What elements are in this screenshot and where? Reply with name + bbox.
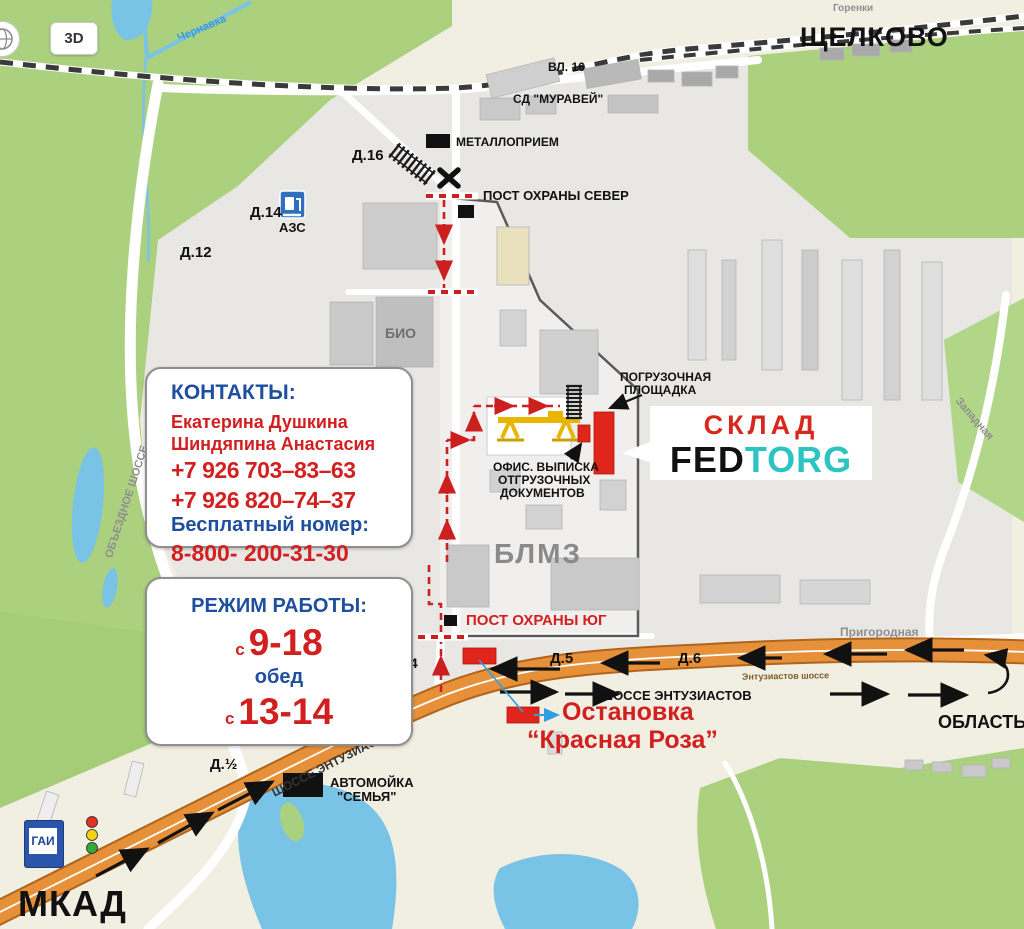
schedule-box: РЕЖИМ РАБОТЫ: с9-18 обед с13-14 (145, 577, 413, 746)
loading-label-2: ПЛОЩАДКА (624, 384, 696, 396)
vl16-label: ВЛ. 16 (548, 61, 585, 73)
schedule-lunch-label: обед (147, 666, 411, 689)
city-label: ЩЕЛКОВО (800, 24, 949, 51)
globe-button[interactable] (0, 21, 20, 57)
contacts-box: КОНТАКТЫ: Екатерина Душкина Шиндяпина Ан… (145, 367, 413, 548)
post-north-label: ПОСТ ОХРАНЫ СЕВЕР (483, 189, 629, 202)
gorenki-label: Горенки (833, 4, 873, 14)
office-label-1: ОФИС. ВЫПИСКА (493, 461, 599, 473)
3d-button[interactable]: 3D (50, 22, 98, 55)
contacts-title: КОНТАКТЫ: (171, 381, 411, 405)
d16-label: Д.16 (352, 148, 384, 163)
office-label-3: ДОКУМЕНТОВ (500, 487, 585, 499)
logo-fedtorg: FEDTORG (650, 439, 872, 481)
d12-label: Д.12 (180, 245, 212, 260)
azs-label: АЗС (279, 221, 306, 234)
d14-label: Д.14 (250, 205, 282, 220)
d5-label: Д.5 (550, 651, 573, 666)
contact-phone-2: +7 926 820–74–37 (171, 486, 411, 516)
bio-label: БИО (385, 326, 416, 340)
map-stage[interactable]: 3D Чернавка Горенки ЩЕЛКОВО ВЛ. 16 СД "М… (0, 0, 1024, 929)
oblast-label: ОБЛАСТЬ (938, 713, 1024, 731)
gai-label: ГАИ (31, 834, 54, 848)
carwash-label-1: АВТОМОЙКА (330, 776, 414, 789)
loading-label-1: ПОГРУЗОЧНАЯ (620, 371, 711, 383)
entuziastov-onroad-label: Энтузиастов шоссе (742, 671, 829, 682)
logo-bubble: СКЛАД FEDTORG (650, 406, 872, 480)
contacts-free-phone: 8-800- 200-31-30 (171, 540, 411, 567)
contact-name-1: Екатерина Душкина (171, 412, 411, 434)
contact-phone-1: +7 926 703–83–63 (171, 456, 411, 486)
d-half-label: Д.½ (210, 757, 237, 772)
mkad-label: МКАД (18, 886, 127, 922)
d6-label: Д.6 (678, 651, 701, 666)
blmz-label: БЛМЗ (494, 540, 582, 568)
office-label-2: ОТГРУЗОЧНЫХ (498, 474, 590, 486)
schedule-title: РЕЖИМ РАБОТЫ: (147, 595, 411, 618)
prigorodnaya-label: Пригородная (840, 626, 919, 638)
traffic-light-icon (87, 817, 98, 854)
busstop-label-2: “Красная Роза” (527, 728, 718, 753)
carwash-label-2: "СЕМЬЯ" (337, 790, 396, 803)
schedule-lunch-hours: с13-14 (147, 691, 411, 733)
post-south-label: ПОСТ ОХРАНЫ ЮГ (466, 613, 607, 628)
logo-sklad: СКЛАД (650, 410, 872, 441)
metallopriem-label: МЕТАЛЛОПРИЕМ (456, 136, 559, 148)
sd-muravei-label: СД "МУРАВЕЙ" (513, 93, 603, 105)
gai-sign: ГАИ (24, 820, 64, 868)
contact-name-2: Шиндяпина Анастасия (171, 434, 411, 456)
schedule-hours: с9-18 (147, 622, 411, 664)
office-building (578, 425, 590, 442)
rail-spur-symbol-dock (566, 385, 582, 419)
busstop-label-1: Остановка (562, 700, 694, 725)
contacts-free-label: Бесплатный номер: (171, 514, 411, 537)
gas-station-icon (280, 191, 305, 218)
